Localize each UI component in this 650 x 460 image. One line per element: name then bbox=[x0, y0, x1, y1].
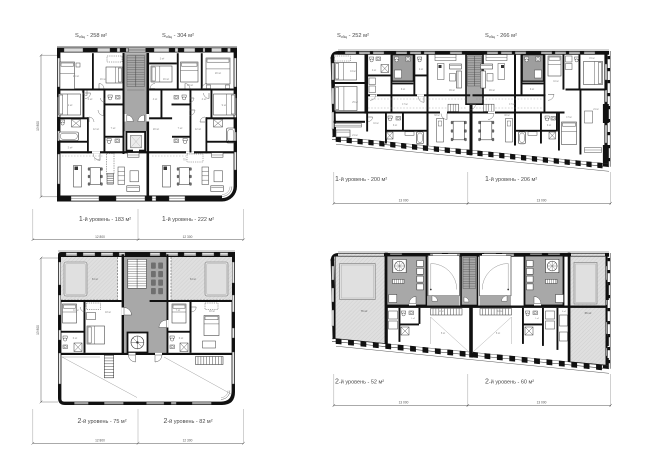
svg-text:1 м²: 1 м² bbox=[535, 317, 539, 320]
svg-text:21 м²: 21 м² bbox=[352, 134, 358, 137]
svg-text:49 м²: 49 м² bbox=[489, 89, 495, 92]
svg-text:20 м²: 20 м² bbox=[153, 127, 159, 131]
svg-text:4 м²: 4 м² bbox=[153, 98, 158, 101]
svg-text:12 300: 12 300 bbox=[183, 439, 193, 443]
svg-text:16 м²: 16 м² bbox=[100, 77, 106, 81]
svg-text:25 м²: 25 м² bbox=[352, 101, 358, 104]
svg-text:66 м²: 66 м² bbox=[585, 311, 592, 315]
svg-text:13 800: 13 800 bbox=[36, 325, 40, 335]
svg-text:10 м²: 10 м² bbox=[553, 80, 559, 83]
svg-text:12 800: 12 800 bbox=[95, 235, 105, 239]
svg-text:6 м²: 6 м² bbox=[547, 124, 551, 127]
svg-text:49 м²: 49 м² bbox=[449, 89, 455, 92]
svg-text:20 м²: 20 м² bbox=[215, 71, 221, 75]
svg-text:7 м²: 7 м² bbox=[178, 126, 183, 130]
svg-text:64 м²: 64 м² bbox=[190, 277, 196, 281]
svg-text:12 300: 12 300 bbox=[183, 235, 193, 239]
svg-text:13 000: 13 000 bbox=[399, 199, 409, 203]
svg-text:25 м²: 25 м² bbox=[73, 74, 79, 78]
svg-text:2 м²: 2 м² bbox=[419, 68, 423, 71]
svg-text:2-й уровень - 82 м²: 2-й уровень - 82 м² bbox=[163, 418, 212, 425]
svg-text:7 м²: 7 м² bbox=[176, 309, 181, 312]
svg-text:1-й уровень - 222 м²: 1-й уровень - 222 м² bbox=[162, 216, 214, 223]
svg-text:6 м²: 6 м² bbox=[73, 337, 78, 340]
svg-text:3 м²: 3 м² bbox=[160, 58, 165, 61]
svg-text:40 м²: 40 м² bbox=[504, 114, 510, 117]
svg-text:1-й уровень - 200 м²: 1-й уровень - 200 м² bbox=[335, 176, 387, 183]
svg-text:77 м²: 77 м² bbox=[94, 158, 100, 162]
svg-text:76 м²: 76 м² bbox=[361, 309, 368, 313]
svg-text:1 м²: 1 м² bbox=[411, 317, 415, 320]
svg-text:12 м²: 12 м² bbox=[195, 127, 201, 131]
svg-text:13 м²: 13 м² bbox=[187, 83, 193, 87]
svg-text:13 000: 13 000 bbox=[399, 401, 409, 405]
svg-text:3 м²: 3 м² bbox=[68, 146, 73, 150]
svg-text:2-й уровень - 60 м²: 2-й уровень - 60 м² bbox=[485, 379, 534, 386]
svg-text:7 м²: 7 м² bbox=[111, 126, 116, 130]
svg-text:6 м²: 6 м² bbox=[179, 337, 184, 340]
svg-text:6 м²: 6 м² bbox=[393, 124, 397, 127]
svg-text:13 000: 13 000 bbox=[537, 401, 547, 405]
svg-text:10 м²: 10 м² bbox=[497, 310, 503, 313]
svg-text:10 м²: 10 м² bbox=[73, 309, 79, 312]
svg-text:12 м²: 12 м² bbox=[93, 127, 99, 131]
svg-text:13 800: 13 800 bbox=[36, 121, 40, 131]
svg-text:4 м²: 4 м² bbox=[372, 69, 376, 72]
svg-text:16 м²: 16 м² bbox=[350, 70, 356, 73]
svg-text:12 800: 12 800 bbox=[95, 439, 105, 443]
svg-text:9 м²: 9 м² bbox=[222, 103, 227, 107]
svg-text:9 м²: 9 м² bbox=[68, 103, 73, 107]
svg-text:17 м²: 17 м² bbox=[566, 116, 572, 119]
svg-text:5 м²: 5 м² bbox=[441, 332, 445, 335]
svg-text:6 м²: 6 м² bbox=[530, 88, 534, 91]
svg-text:64 м²: 64 м² bbox=[92, 277, 98, 281]
svg-text:2-й уровень - 52 м²: 2-й уровень - 52 м² bbox=[335, 379, 384, 386]
svg-text:18 м²: 18 м² bbox=[209, 310, 215, 313]
svg-text:32 м²: 32 м² bbox=[434, 114, 440, 117]
svg-text:17 м²: 17 м² bbox=[402, 103, 408, 106]
svg-text:21 м²: 21 м² bbox=[593, 108, 599, 111]
svg-text:1-й уровень - 206 м²: 1-й уровень - 206 м² bbox=[485, 176, 537, 183]
svg-text:16 м²: 16 м² bbox=[163, 77, 169, 81]
svg-text:8 м²: 8 м² bbox=[562, 310, 566, 313]
svg-text:6 м²: 6 м² bbox=[401, 88, 405, 91]
svg-text:2-й уровень - 75 м²: 2-й уровень - 75 м² bbox=[77, 418, 126, 425]
svg-text:10 м²: 10 м² bbox=[373, 122, 379, 125]
svg-text:5 м²: 5 м² bbox=[496, 332, 500, 335]
svg-text:15 м²: 15 м² bbox=[589, 57, 595, 60]
svg-text:10 м²: 10 м² bbox=[438, 310, 444, 313]
svg-text:18 м²: 18 м² bbox=[105, 311, 111, 314]
svg-text:13 000: 13 000 bbox=[537, 199, 547, 203]
svg-text:1-й уровень - 183 м²: 1-й уровень - 183 м² bbox=[79, 216, 131, 223]
svg-text:17 м²: 17 м² bbox=[509, 103, 515, 106]
